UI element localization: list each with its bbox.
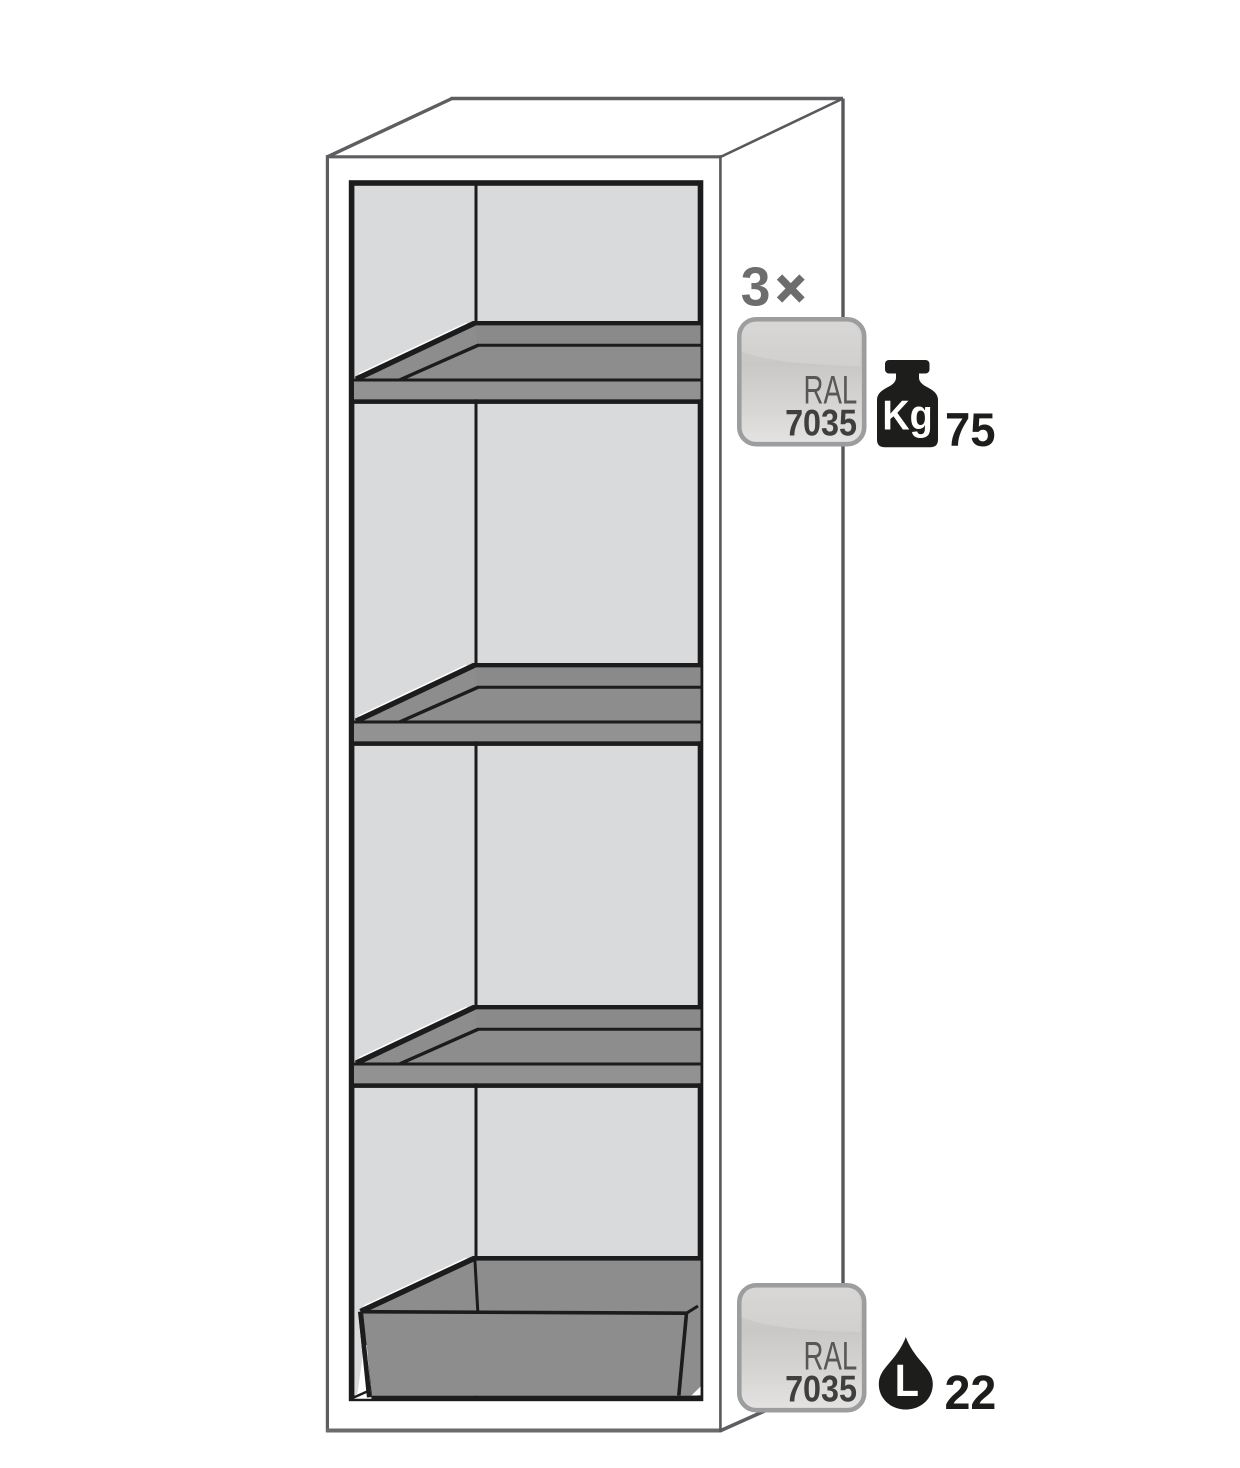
svg-text:22: 22 [945,1366,997,1420]
svg-text:L: L [895,1355,919,1406]
svg-text:7035: 7035 [785,1370,857,1410]
svg-text:7035: 7035 [785,404,857,444]
svg-text:75: 75 [945,403,996,456]
svg-text:Kg: Kg [882,393,932,439]
svg-text:3: 3 [741,257,771,318]
